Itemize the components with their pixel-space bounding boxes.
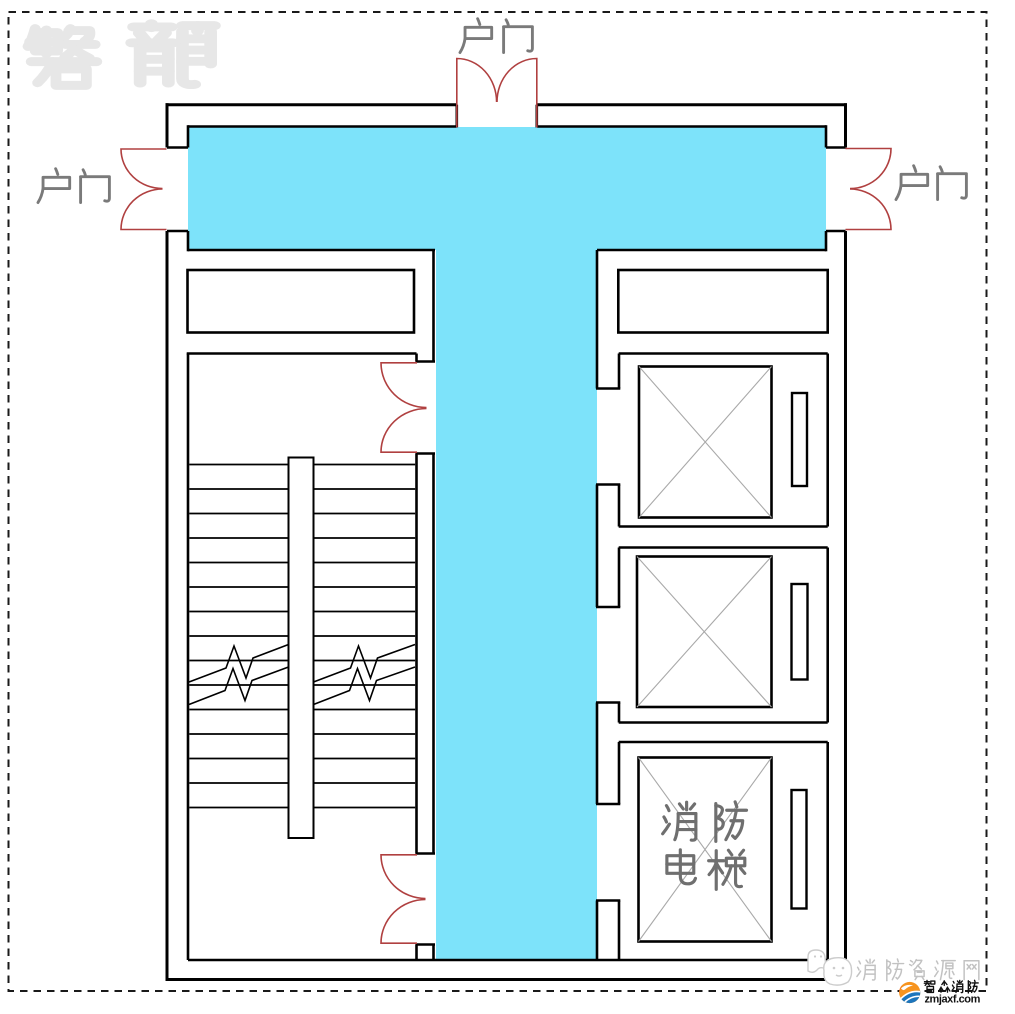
svg-text:zmjaxf.com: zmjaxf.com (925, 994, 981, 1006)
